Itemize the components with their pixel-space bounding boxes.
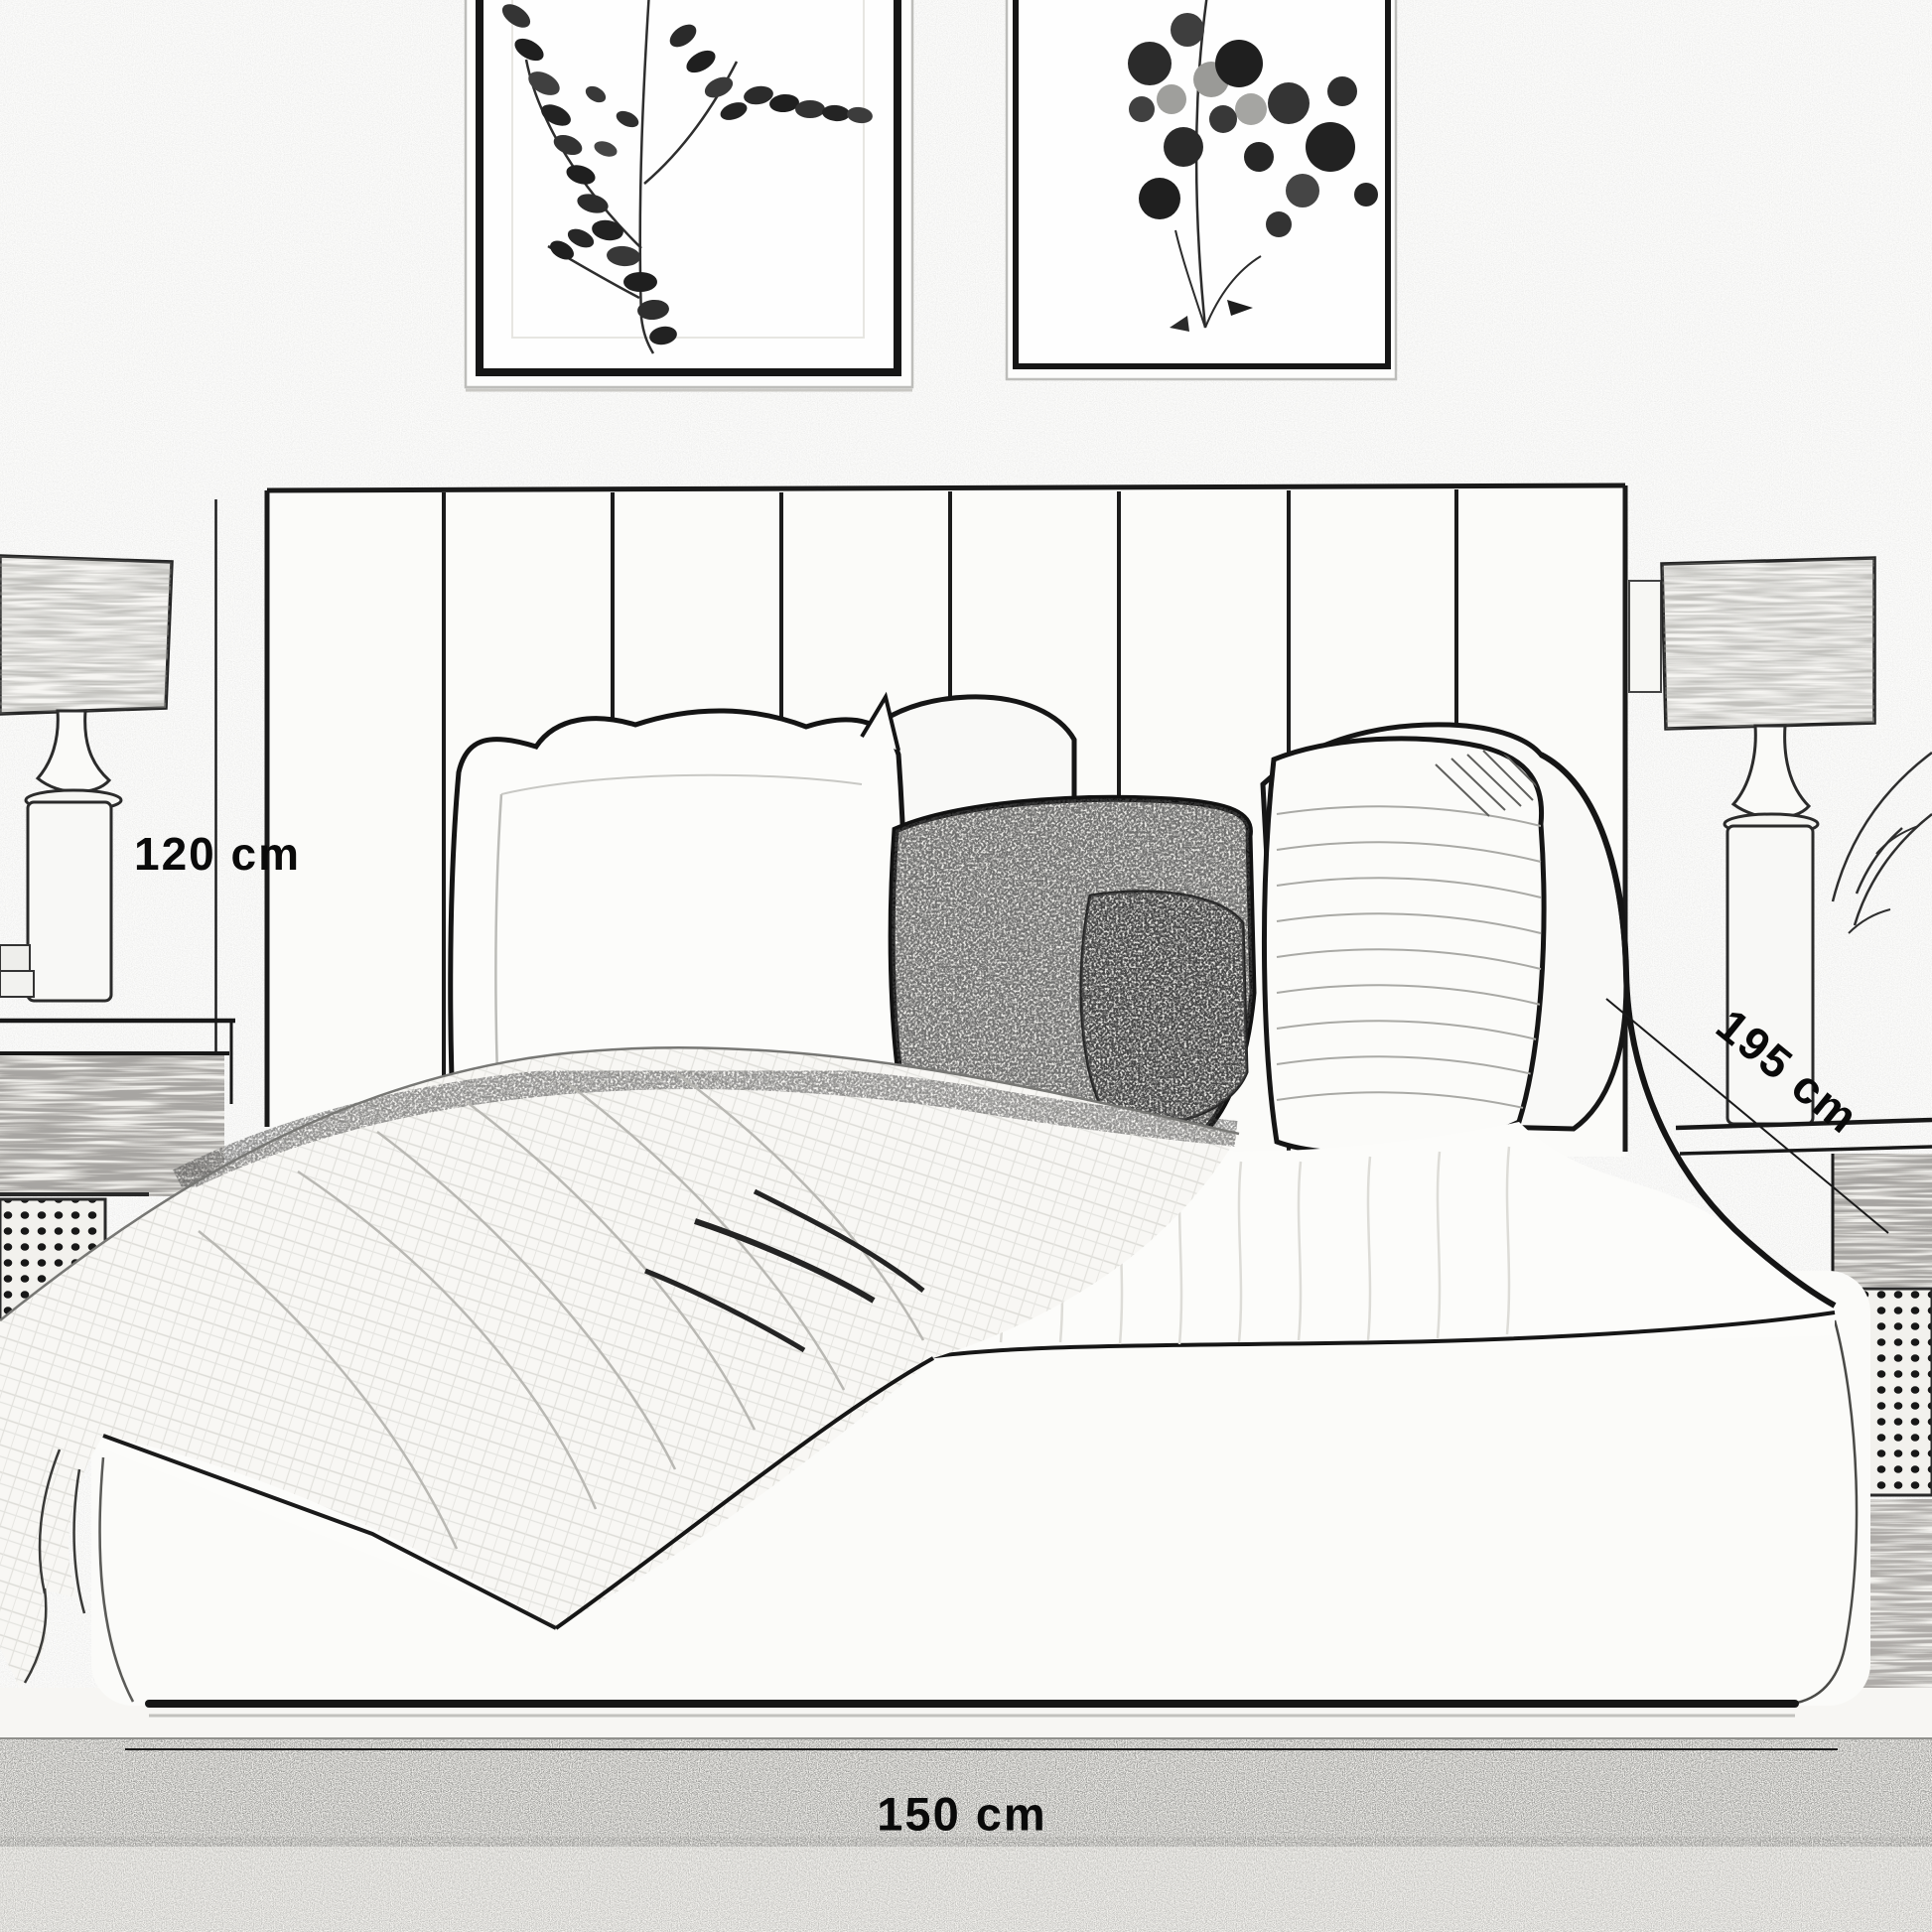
framed-botanical-print-right xyxy=(1007,0,1396,379)
headboard-side-return xyxy=(1629,581,1661,692)
bed-dimension-illustration: 120 cm 195 cm 150 cm xyxy=(0,0,1932,1932)
height-dimension-label: 120 cm xyxy=(134,831,301,877)
fuzzy-pillow xyxy=(1081,892,1247,1126)
lampshade-texture xyxy=(0,556,172,714)
width-dimension-label: 150 cm xyxy=(877,1791,1046,1838)
framed-botanical-print-left xyxy=(466,0,912,390)
sketch-scene xyxy=(0,0,1932,1932)
striped-pillow xyxy=(1264,739,1544,1154)
book-stack xyxy=(0,945,30,971)
